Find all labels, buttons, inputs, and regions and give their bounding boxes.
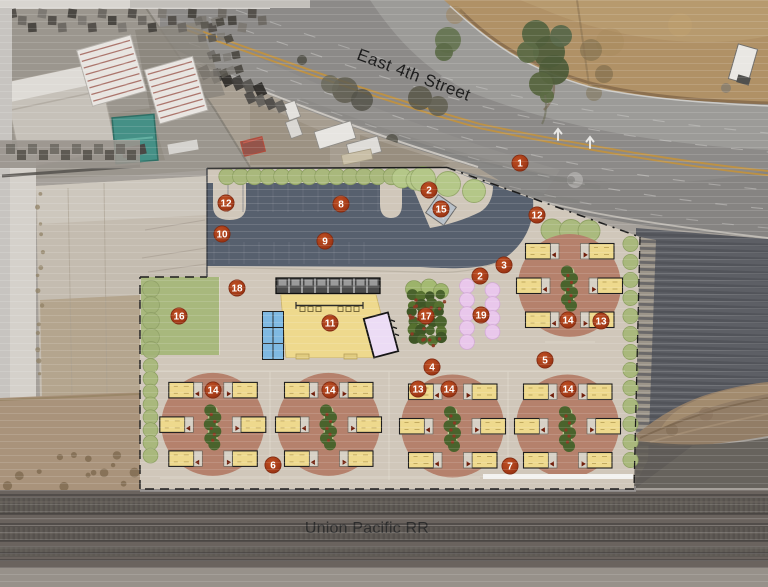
svg-text:16: 16 [173,312,185,323]
svg-text:14: 14 [443,385,455,396]
svg-text:5: 5 [542,356,548,367]
svg-text:Union Pacific RR: Union Pacific RR [305,520,429,537]
svg-text:12: 12 [531,211,543,222]
svg-text:9: 9 [322,237,328,248]
svg-text:17: 17 [420,312,432,323]
svg-text:8: 8 [338,200,344,211]
svg-text:10: 10 [216,230,228,241]
svg-text:13: 13 [595,317,607,328]
svg-text:13: 13 [412,385,424,396]
svg-text:14: 14 [562,316,574,327]
svg-text:15: 15 [435,205,447,216]
svg-text:14: 14 [562,385,574,396]
svg-text:3: 3 [501,261,507,272]
svg-text:12: 12 [220,199,232,210]
svg-text:19: 19 [475,311,487,322]
svg-text:14: 14 [324,386,336,397]
svg-text:11: 11 [325,319,336,330]
svg-text:4: 4 [429,363,435,374]
svg-text:18: 18 [231,284,243,295]
svg-text:2: 2 [477,272,483,283]
svg-text:7: 7 [507,462,513,473]
svg-text:1: 1 [517,159,523,170]
svg-text:14: 14 [207,386,219,397]
svg-text:6: 6 [270,461,276,472]
svg-text:2: 2 [426,186,432,197]
